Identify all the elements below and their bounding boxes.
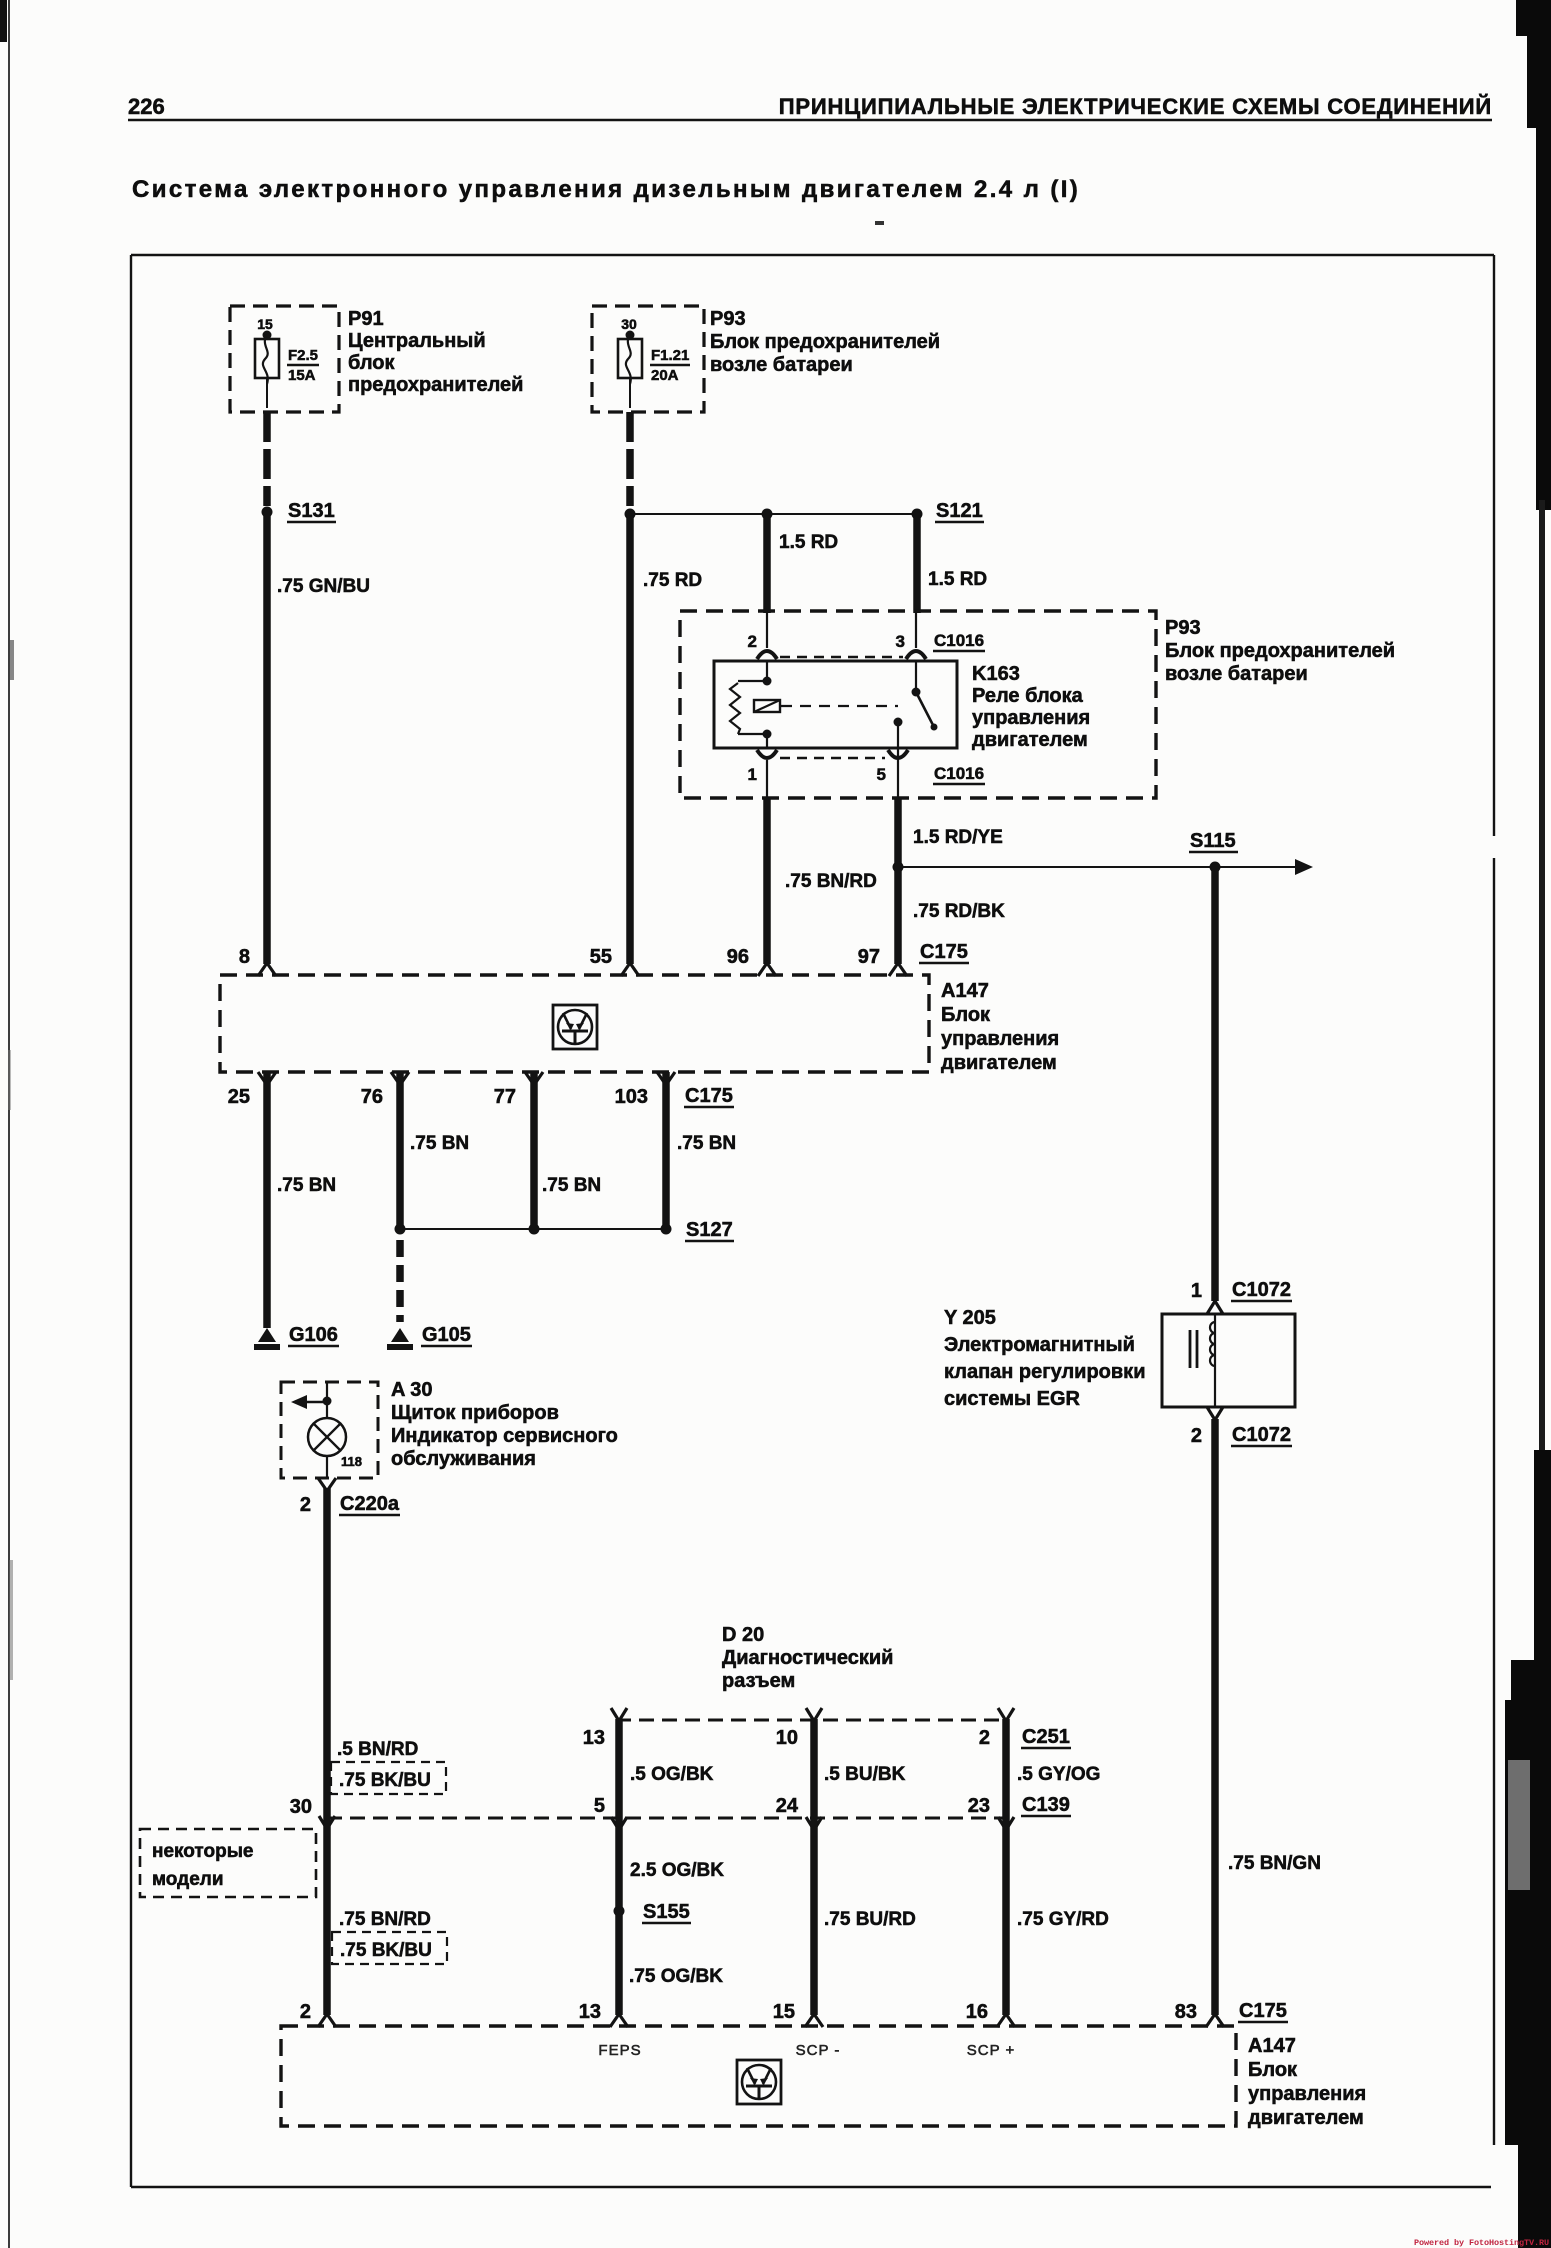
svg-text:226: 226 [128, 94, 165, 119]
svg-text:.75 BK/BU: .75 BK/BU [340, 1940, 432, 1961]
svg-text:2: 2 [1191, 1425, 1202, 1447]
svg-text:20A: 20A [651, 367, 679, 384]
svg-text:Индикатор сервисного: Индикатор сервисного [391, 1425, 618, 1447]
svg-text:96: 96 [727, 946, 749, 968]
svg-text:двигателем: двигателем [1248, 2107, 1364, 2129]
svg-text:C175: C175 [920, 941, 968, 963]
svg-text:5: 5 [594, 1795, 605, 1817]
svg-text:2: 2 [979, 1727, 990, 1749]
svg-text:.75 RD: .75 RD [643, 570, 702, 591]
svg-text:Блок: Блок [941, 1004, 991, 1026]
svg-text:S115: S115 [1190, 830, 1236, 852]
svg-text:F2.5: F2.5 [288, 347, 318, 364]
svg-text:3: 3 [896, 632, 905, 651]
svg-text:S131: S131 [288, 500, 335, 522]
svg-text:30: 30 [290, 1796, 312, 1818]
svg-text:.5 BN/RD: .5 BN/RD [337, 1739, 418, 1760]
svg-text:Y 205: Y 205 [944, 1307, 996, 1329]
svg-text:.75 BN/RD: .75 BN/RD [339, 1909, 431, 1930]
svg-text:управления: управления [1248, 2083, 1366, 2105]
svg-text:Диагностический: Диагностический [722, 1647, 893, 1669]
svg-text:25: 25 [228, 1086, 250, 1108]
svg-text:.75 GY/RD: .75 GY/RD [1017, 1909, 1109, 1930]
svg-text:13: 13 [583, 1727, 605, 1749]
svg-text:C175: C175 [1239, 2000, 1287, 2022]
svg-text:некоторые: некоторые [152, 1841, 254, 1862]
svg-text:.75 RD/BK: .75 RD/BK [913, 901, 1005, 922]
svg-text:.75 BU/RD: .75 BU/RD [824, 1909, 916, 1930]
svg-text:10: 10 [776, 1727, 798, 1749]
svg-text:55: 55 [590, 946, 612, 968]
svg-text:.5 BU/BK: .5 BU/BK [824, 1764, 906, 1785]
svg-text:G105: G105 [422, 1324, 471, 1346]
svg-text:S155: S155 [643, 1901, 690, 1923]
svg-text:C1072: C1072 [1232, 1424, 1291, 1446]
svg-text:возле батареи: возле батареи [1165, 663, 1308, 685]
svg-text:предохранителей: предохранителей [348, 374, 523, 396]
svg-text:2.5 OG/BK: 2.5 OG/BK [630, 1860, 724, 1881]
svg-text:1.5 RD: 1.5 RD [779, 532, 838, 553]
svg-text:SCP -: SCP - [796, 2042, 841, 2059]
svg-text:Система электронного управлени: Система электронного управления дизельны… [132, 176, 1080, 203]
svg-text:97: 97 [858, 946, 880, 968]
svg-text:.75 BN: .75 BN [677, 1133, 736, 1154]
svg-text:A147: A147 [941, 980, 989, 1002]
svg-text:K163: K163 [972, 663, 1020, 685]
svg-text:1: 1 [748, 765, 757, 784]
svg-text:1: 1 [1191, 1280, 1202, 1302]
svg-text:управления: управления [972, 707, 1090, 729]
svg-text:Блок предохранителей: Блок предохранителей [1165, 640, 1395, 662]
svg-text:Powered by FotoHostingTV.RU: Powered by FotoHostingTV.RU [1414, 2238, 1549, 2248]
svg-text:блок: блок [348, 352, 396, 374]
svg-text:15: 15 [257, 316, 273, 332]
svg-text:C1016: C1016 [934, 764, 984, 783]
svg-text:A 30: A 30 [391, 1379, 433, 1401]
svg-text:Блок предохранителей: Блок предохранителей [710, 331, 940, 353]
svg-text:76: 76 [361, 1086, 383, 1108]
svg-text:возле батареи: возле батареи [710, 354, 853, 376]
svg-text:16: 16 [966, 2001, 988, 2023]
svg-text:Блок: Блок [1248, 2059, 1298, 2081]
svg-text:1.5 RD: 1.5 RD [928, 569, 987, 590]
svg-text:системы EGR: системы EGR [944, 1388, 1081, 1410]
svg-text:24: 24 [776, 1795, 799, 1817]
svg-text:.5 OG/BK: .5 OG/BK [630, 1764, 714, 1785]
svg-text:83: 83 [1175, 2001, 1197, 2023]
svg-text:P91: P91 [348, 308, 384, 330]
svg-text:Центральный: Центральный [348, 330, 486, 352]
svg-text:1.5 RD/YE: 1.5 RD/YE [913, 827, 1003, 848]
svg-text:A147: A147 [1248, 2035, 1296, 2057]
svg-text:SCP +: SCP + [967, 2042, 1016, 2059]
svg-text:C251: C251 [1022, 1726, 1070, 1748]
svg-text:Реле блока: Реле блока [972, 685, 1084, 707]
svg-text:Электромагнитный: Электромагнитный [944, 1334, 1135, 1356]
svg-text:разъем: разъем [722, 1670, 795, 1692]
svg-text:15A: 15A [288, 367, 316, 384]
svg-text:15: 15 [773, 2001, 795, 2023]
svg-text:модели: модели [152, 1869, 224, 1890]
svg-text:.75 BK/BU: .75 BK/BU [339, 1770, 431, 1791]
svg-text:2: 2 [300, 2001, 311, 2023]
svg-text:двигателем: двигателем [941, 1052, 1057, 1074]
svg-text:.75 BN/GN: .75 BN/GN [1228, 1853, 1321, 1874]
svg-text:G106: G106 [289, 1324, 338, 1346]
svg-text:C139: C139 [1022, 1794, 1070, 1816]
svg-text:S127: S127 [686, 1219, 733, 1241]
svg-text:S121: S121 [936, 500, 983, 522]
svg-text:.75 OG/BK: .75 OG/BK [629, 1966, 723, 1987]
svg-text:обслуживания: обслуживания [391, 1448, 536, 1470]
svg-text:клапан регулировки: клапан регулировки [944, 1361, 1145, 1383]
svg-text:ПРИНЦИПИАЛЬНЫЕ ЭЛЕКТРИЧЕСКИЕ С: ПРИНЦИПИАЛЬНЫЕ ЭЛЕКТРИЧЕСКИЕ СХЕМЫ СОЕДИ… [779, 94, 1492, 119]
svg-text:8: 8 [239, 946, 250, 968]
svg-text:13: 13 [579, 2001, 601, 2023]
svg-text:103: 103 [615, 1086, 648, 1108]
svg-text:2: 2 [300, 1494, 311, 1516]
svg-text:C175: C175 [685, 1085, 733, 1107]
svg-text:двигателем: двигателем [972, 729, 1088, 751]
svg-text:23: 23 [968, 1795, 990, 1817]
svg-text:F1.21: F1.21 [651, 347, 689, 364]
svg-text:2: 2 [748, 632, 757, 651]
svg-text:.75 BN/RD: .75 BN/RD [785, 871, 877, 892]
svg-text:5: 5 [877, 765, 886, 784]
svg-text:C1072: C1072 [1232, 1279, 1291, 1301]
svg-text:D 20: D 20 [722, 1624, 764, 1646]
svg-text:.75 BN: .75 BN [542, 1175, 601, 1196]
svg-text:.75 BN: .75 BN [277, 1175, 336, 1196]
svg-text:.75 BN: .75 BN [410, 1133, 469, 1154]
svg-text:P93: P93 [710, 308, 746, 330]
svg-text:P93: P93 [1165, 617, 1201, 639]
svg-text:управления: управления [941, 1028, 1059, 1050]
svg-text:C220a: C220a [340, 1493, 400, 1515]
svg-text:77: 77 [494, 1086, 516, 1108]
svg-text:118: 118 [341, 1454, 362, 1469]
svg-text:Щиток приборов: Щиток приборов [391, 1402, 559, 1424]
svg-text:C1016: C1016 [934, 631, 984, 650]
svg-text:.75 GN/BU: .75 GN/BU [277, 576, 370, 597]
svg-text:FEPS: FEPS [598, 2042, 641, 2059]
svg-text:.5 GY/OG: .5 GY/OG [1017, 1764, 1100, 1785]
svg-text:30: 30 [621, 316, 637, 332]
